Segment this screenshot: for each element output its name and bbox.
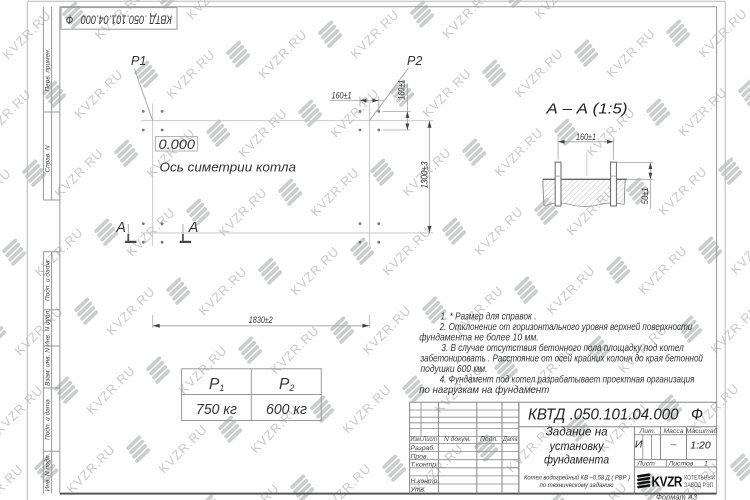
- svg-text:1: 1: [704, 461, 708, 468]
- svg-text:Формат А3: Формат А3: [656, 492, 698, 500]
- svg-text:Масса: Масса: [663, 428, 683, 435]
- svg-text:Листов: Листов: [668, 461, 694, 468]
- svg-text:Т.контр.: Т.контр.: [411, 462, 439, 469]
- svg-text:фундамента не более 10 мм.: фундамента не более 10 мм.: [419, 331, 539, 343]
- svg-text:Лит.: Лит.: [639, 428, 656, 435]
- svg-text:4. Фундамент под котел разраба: 4. Фундамент под котел разрабатывает про…: [440, 374, 695, 386]
- svg-text:Дата: Дата: [502, 436, 517, 443]
- svg-text:P2: P2: [407, 54, 422, 68]
- svg-text:по техническому заданию: по техническому заданию: [540, 481, 614, 489]
- svg-text:подушки 600 мм.: подушки 600 мм.: [421, 364, 488, 375]
- svg-text:Масштаб: Масштаб: [686, 427, 719, 435]
- svg-text:Разраб.: Разраб.: [411, 444, 436, 452]
- svg-text:–: –: [670, 439, 677, 450]
- svg-text:Взам. инв. N: Взам. инв. N: [45, 348, 52, 386]
- svg-text:Утв.: Утв.: [410, 486, 427, 493]
- svg-text:Инв. N дубл.: Инв. N дубл.: [44, 309, 52, 347]
- svg-text:P1: P1: [131, 54, 146, 68]
- svg-text:N докум.: N докум.: [444, 435, 471, 443]
- svg-text:Пров.: Пров.: [411, 453, 429, 460]
- svg-text:Подп. и дата: Подп. и дата: [44, 260, 52, 301]
- svg-text:3. В случае отсутствия бетонно: 3. В случае отсутствия бетонного пола пл…: [441, 342, 683, 354]
- svg-text:2. Отклонение от горизонтально: 2. Отклонение от горизонтального уровня …: [439, 322, 693, 333]
- svg-text:фундамента: фундамента: [544, 454, 609, 466]
- svg-text:ЗАВОД РЭП: ЗАВОД РЭП: [684, 482, 713, 489]
- svg-text:1:20: 1:20: [690, 439, 711, 451]
- svg-text:И: И: [635, 438, 643, 450]
- svg-text:160±1: 160±1: [397, 80, 407, 100]
- svg-text:КВТД .050.101.04.000 Ф: КВТД .050.101.04.000 Ф: [66, 13, 172, 25]
- svg-text:Лист: Лист: [636, 461, 655, 468]
- svg-text:Справ. N: Справ. N: [45, 145, 52, 173]
- svg-text:Изм.Лист: Изм.Лист: [411, 436, 438, 443]
- svg-text:Н.контр.: Н.контр.: [411, 478, 440, 485]
- svg-text:по нагрузкам на фундамент: по нагрузкам на фундамент: [419, 384, 550, 396]
- svg-text:1830±2: 1830±2: [249, 315, 273, 325]
- svg-text:Котел водогрейный КВ –0,58 Д: Котел водогрейный КВ –0,58 Д ( РВР ): [524, 474, 630, 482]
- svg-text:Подп.: Подп.: [480, 435, 498, 443]
- svg-text:KVZR: KVZR: [652, 474, 683, 491]
- svg-text:0.000: 0.000: [159, 137, 196, 152]
- svg-text:Задание на: Задание на: [546, 427, 608, 439]
- svg-text:КОТЕЛЬНЫЙ: КОТЕЛЬНЫЙ: [684, 473, 715, 482]
- svg-text:1300±3: 1300±3: [419, 162, 429, 189]
- svg-text:Ось симетрии котла: Ось симетрии котла: [160, 161, 297, 175]
- svg-text:A: A: [115, 220, 126, 236]
- svg-text:установку: установку: [549, 441, 605, 453]
- svg-text:КВТД .050.101.04.000 Ф: КВТД .050.101.04.000 Ф: [528, 406, 703, 423]
- svg-text:160±1: 160±1: [332, 91, 352, 101]
- svg-text:600 кг: 600 кг: [266, 402, 307, 418]
- svg-text:Инв. N подл.: Инв. N подл.: [44, 453, 52, 491]
- svg-text:A – A (1:5): A – A (1:5): [545, 101, 627, 118]
- svg-text:50±1: 50±1: [640, 187, 650, 204]
- svg-text:1. * Размер для справок .: 1. * Размер для справок .: [441, 311, 537, 322]
- svg-text:Подп. и дата: Подп. и дата: [44, 399, 52, 440]
- svg-text:забетонировать . Расстояние от: забетонировать . Расстояние от осей край…: [420, 353, 703, 365]
- svg-text:160±1: 160±1: [576, 132, 596, 142]
- svg-text:A: A: [188, 220, 199, 236]
- svg-text:Перв. примен.: Перв. примен.: [45, 48, 52, 91]
- svg-text:750 кг: 750 кг: [196, 402, 237, 418]
